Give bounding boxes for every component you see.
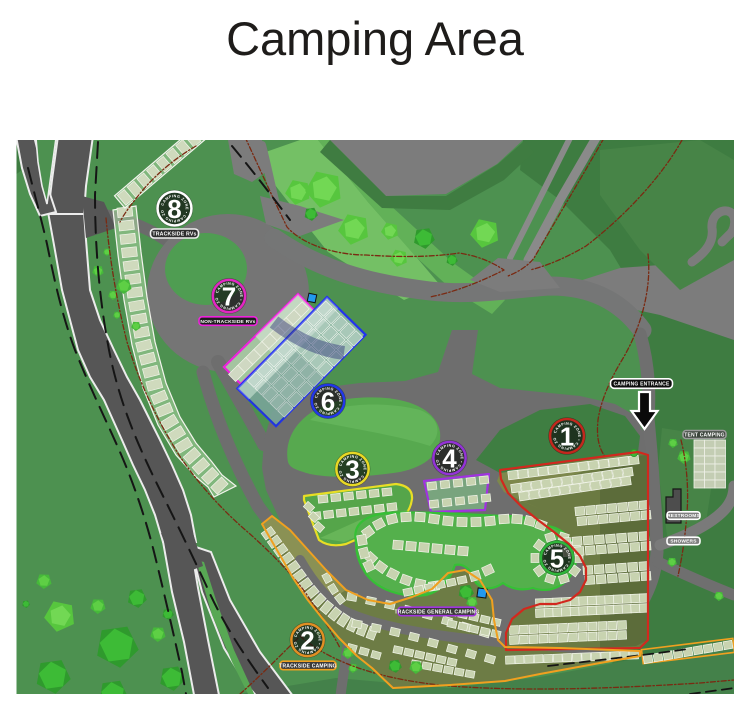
- svg-text:7: 7: [222, 281, 236, 311]
- svg-text:CAMPING ENTRANCE: CAMPING ENTRANCE: [614, 381, 670, 387]
- svg-text:1: 1: [560, 421, 574, 451]
- svg-text:NON-TRACKSIDE RVs: NON-TRACKSIDE RVs: [200, 319, 255, 325]
- svg-text:TRACKSIDE RVs: TRACKSIDE RVs: [152, 231, 196, 237]
- svg-text:TRACKSIDE CAMPING: TRACKSIDE CAMPING: [279, 663, 337, 669]
- svg-text:TRACKSIDE GENERAL CAMPING: TRACKSIDE GENERAL CAMPING: [395, 609, 480, 615]
- svg-text:2: 2: [300, 625, 314, 655]
- svg-text:TENT CAMPING: TENT CAMPING: [684, 432, 724, 438]
- svg-text:SHOWERS: SHOWERS: [670, 539, 697, 545]
- svg-text:Camping Area: Camping Area: [226, 12, 525, 65]
- svg-text:RESTROOMS: RESTROOMS: [667, 513, 700, 519]
- svg-text:6: 6: [321, 386, 335, 416]
- svg-text:4: 4: [442, 443, 457, 473]
- svg-text:3: 3: [345, 454, 359, 484]
- svg-text:8: 8: [167, 194, 181, 224]
- svg-text:5: 5: [550, 543, 564, 573]
